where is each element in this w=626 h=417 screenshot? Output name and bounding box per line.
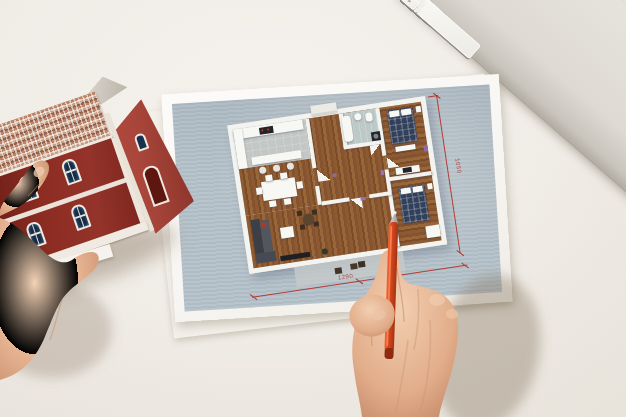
pen-end-cap bbox=[384, 348, 393, 359]
pen-point bbox=[393, 211, 396, 214]
hands-and-pen bbox=[0, 0, 626, 417]
knuckle-highlight bbox=[429, 294, 445, 306]
desk-scene: 4567890-=ERTYUIOPSDFGHJKLXCVBNM,.fn⌃⌥⌘⌘⌥… bbox=[0, 0, 626, 417]
knuckle-highlight bbox=[446, 309, 458, 319]
